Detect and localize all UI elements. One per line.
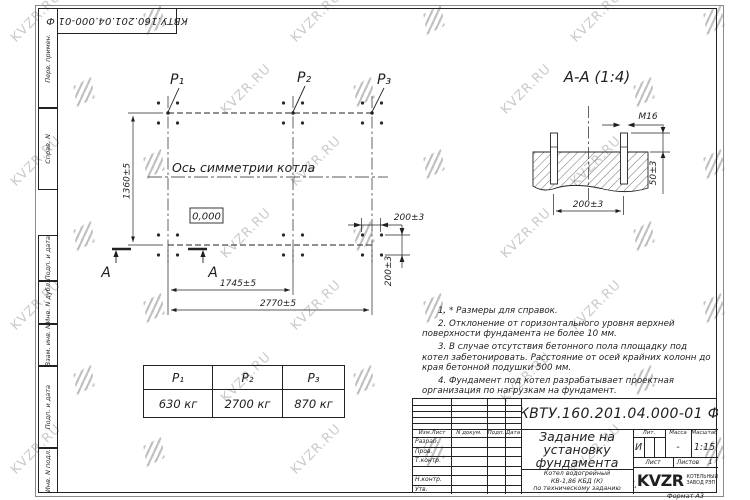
doc-code-rotated: КВТУ.160.201.04.000-01 Ф [46,15,188,26]
company-caption-line-2: ЗАВОД РЭП [687,481,718,486]
load-table-header-p1: P₁ [144,366,213,390]
title-block: Изм.Лист N докум. Подп. Дата Разраб. Про… [412,398,717,493]
title-line-3: фундамента [536,456,619,469]
document-designation: КВТУ.160.201.04.000-01 Ф [521,399,718,429]
company-caption-line-1: КОТЕЛЬНЫЙ [687,475,718,480]
stamp-label: Инв. N дубл. [44,281,52,324]
rev-col-podp: Подп. [487,429,505,437]
stamp-label: Взам. инв. N [44,324,52,366]
sign-row-prov: Пров. [413,447,451,457]
load-table-value-p3: 870 кг [283,390,344,417]
sign-row-blank [413,466,451,476]
stamp-cell-inv-podl: Инв. N подл. [38,448,58,493]
doc-code-box: КВТУ.160.201.04.000-01 Ф [57,8,177,34]
lit-value: И [633,437,644,457]
rev-col-izm-list: Изм.Лист [413,429,451,437]
sign-row-razrab: Разраб. [413,437,451,447]
stamp-cell-podp-data-1: Подп. и дата [38,235,58,281]
product-name: Котел водогрейный КВ-1,86 КБД (К) по тех… [521,469,633,494]
kvzr-logo-icon [633,473,636,488]
stamp-cell-inv-dubl: Инв. N дубл. [38,281,58,324]
title-line-1: Задание на [536,430,619,443]
stamp-label: Подп. и дата [44,236,52,280]
sheets-value: 1 [703,457,718,467]
load-table-value-p1: 630 кг [144,390,213,417]
drawing-sheet: KVZR.RUKVZR.RUKVZR.RUKVZR.RUKVZR.RUKVZR.… [0,0,750,500]
load-table-value-p2: 2700 кг [213,390,283,417]
sign-row-nkontr: Н.контр. [413,475,451,485]
load-table-header-p3: P₃ [283,366,344,390]
note-2: 2. Отклонение от горизонтального уровня … [422,319,715,340]
scale-label: Масштаб [691,429,718,437]
format-note: Формат А3 [648,492,723,500]
title-line-2: установку [536,443,619,456]
load-table: P₁ P₂ P₃ 630 кг 2700 кг 870 кг [143,365,345,418]
rev-col-data: Дата [505,429,521,437]
stamp-label: Подп. и дата [44,385,52,429]
note-1: 1. * Размеры для справок. [422,306,715,316]
product-line-3: по техническому заданию [533,485,621,493]
sign-row-tkontr: Т.контр. [413,456,451,466]
lit-label: Лит. [633,429,665,437]
document-title: Задание на установку фундамента [521,429,633,469]
note-3: 3. В случае отсутствия бетонного пола пл… [422,342,715,373]
stamp-cell-podp-data-2: Подп. и дата [38,366,58,448]
stamp-cell-vzam-inv: Взам. инв. N [38,324,58,366]
stamp-cell-sprav-n: Справ. N [38,108,58,190]
load-table-header-p2: P₂ [213,366,283,390]
sheets-label: Листов [673,457,703,467]
company-block: KVZR КОТЕЛЬНЫЙ ЗАВОД РЭП [633,467,718,494]
sheet-label: Лист [633,457,673,467]
kvzr-logo-text: KVZR [637,471,684,490]
technical-notes: 1. * Размеры для справок. 2. Отклонение … [422,306,715,399]
company-caption: КОТЕЛЬНЫЙ ЗАВОД РЭП [687,475,718,486]
stamp-label: Инв. N подл. [44,449,52,492]
product-line-2: КВ-1,86 КБД (К) [533,478,621,486]
stamp-label: Справ. N [44,134,52,164]
sign-row-utv: Утв. [413,485,451,495]
mass-label: Масса [665,429,691,437]
note-4: 4. Фундамент под котел разрабатывает про… [422,376,715,397]
stamp-label: Перв. примен. [44,34,52,83]
rev-col-n-dokum: N докум. [451,429,487,437]
scale-value: 1:15 [691,437,718,457]
product-line-1: Котел водогрейный [533,470,621,478]
mass-value: - [665,437,691,457]
